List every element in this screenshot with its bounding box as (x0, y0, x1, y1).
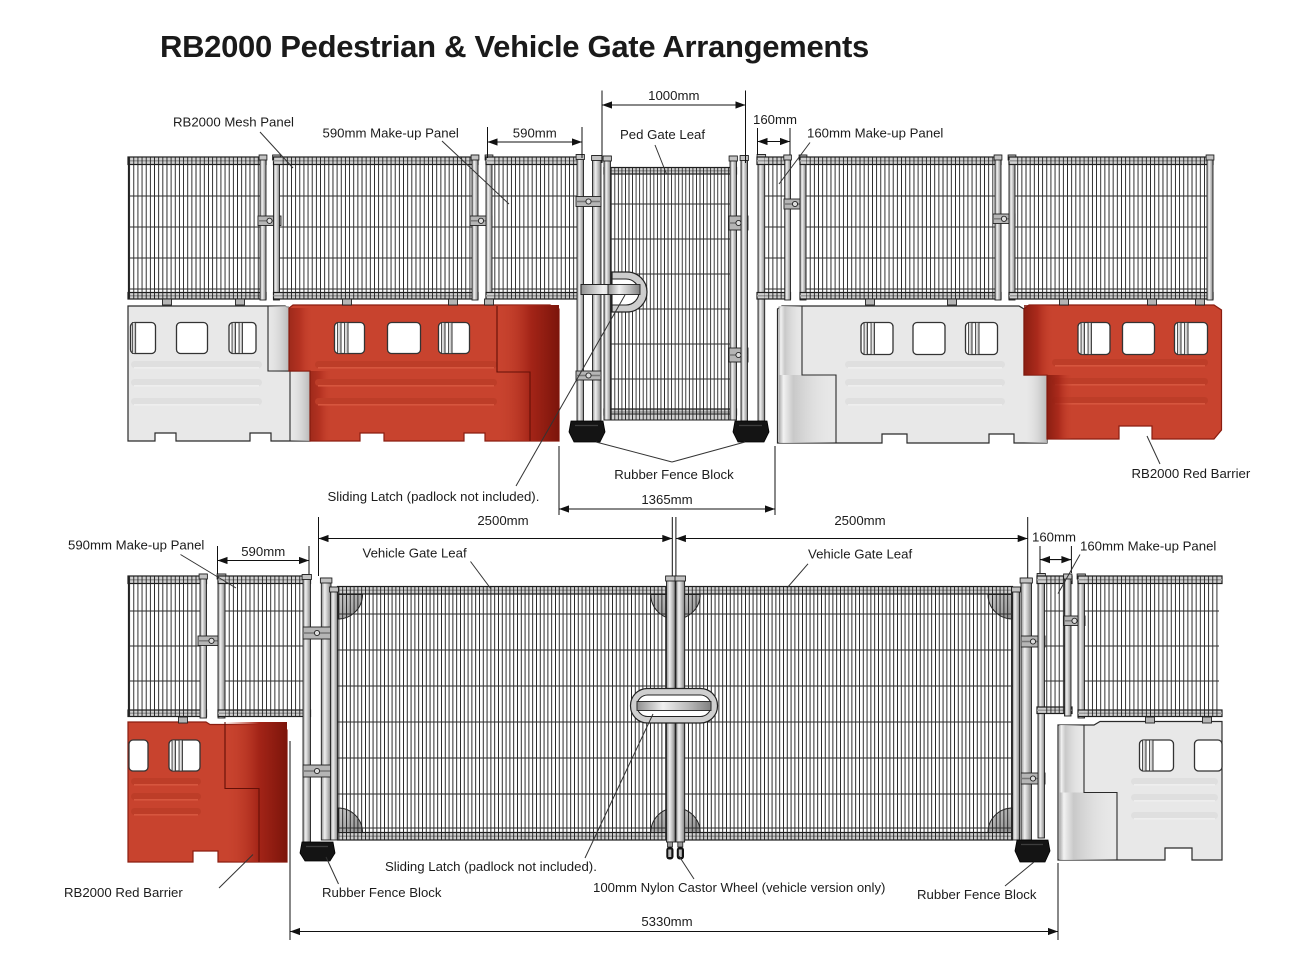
svg-text:2500mm: 2500mm (834, 513, 885, 528)
svg-text:590mm Make-up Panel: 590mm Make-up Panel (323, 126, 459, 141)
svg-text:1000mm: 1000mm (648, 88, 699, 103)
svg-text:RB2000 Red Barrier: RB2000 Red Barrier (1132, 466, 1251, 481)
svg-text:Vehicle Gate Leaf: Vehicle Gate Leaf (808, 547, 912, 562)
svg-text:2500mm: 2500mm (477, 513, 528, 528)
svg-text:590mm: 590mm (241, 544, 285, 559)
svg-text:Rubber Fence Block: Rubber Fence Block (614, 467, 734, 482)
svg-text:100mm Nylon Castor Wheel (vehi: 100mm Nylon Castor Wheel (vehicle versio… (593, 880, 885, 895)
svg-text:590mm Make-up Panel: 590mm Make-up Panel (68, 538, 204, 553)
svg-text:160mm: 160mm (753, 112, 797, 127)
svg-text:Sliding Latch (padlock not inc: Sliding Latch (padlock not included). (328, 489, 540, 504)
svg-text:160mm Make-up Panel: 160mm Make-up Panel (807, 126, 943, 141)
svg-text:RB2000 Red Barrier: RB2000 Red Barrier (64, 885, 183, 900)
svg-text:5330mm: 5330mm (641, 914, 692, 929)
svg-text:Ped Gate Leaf: Ped Gate Leaf (620, 127, 705, 142)
svg-text:Rubber Fence Block: Rubber Fence Block (917, 887, 1037, 902)
svg-text:160mm: 160mm (1032, 530, 1076, 545)
svg-text:160mm Make-up Panel: 160mm Make-up Panel (1080, 539, 1216, 554)
svg-text:Rubber Fence Block: Rubber Fence Block (322, 885, 442, 900)
svg-text:1365mm: 1365mm (641, 492, 692, 507)
svg-text:590mm: 590mm (513, 126, 557, 141)
svg-text:RB2000 Pedestrian & Vehicle Ga: RB2000 Pedestrian & Vehicle Gate Arrange… (160, 29, 869, 64)
svg-text:Vehicle Gate Leaf: Vehicle Gate Leaf (363, 546, 467, 561)
svg-text:RB2000 Mesh Panel: RB2000 Mesh Panel (173, 115, 294, 130)
svg-text:Sliding Latch (padlock not inc: Sliding Latch (padlock not included). (385, 859, 597, 874)
